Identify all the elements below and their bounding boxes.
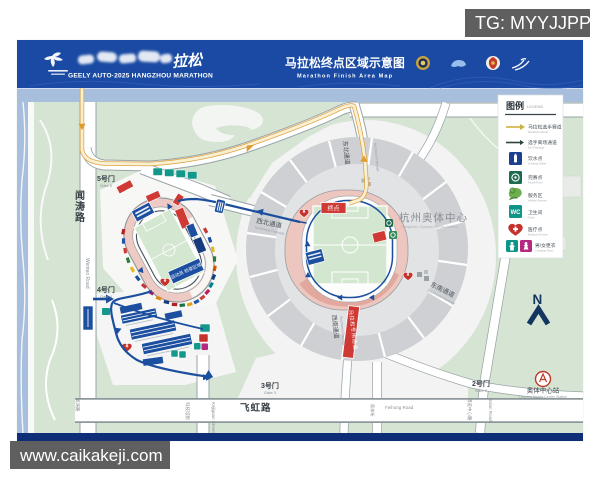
svg-text:Exit Passage: Exit Passage bbox=[528, 146, 545, 150]
svg-text:Drinking Water: Drinking Water bbox=[528, 162, 546, 166]
svg-text:Changing Room: Changing Room bbox=[535, 249, 554, 253]
svg-text:Toilet: Toilet bbox=[528, 216, 535, 220]
svg-text:奥体街: 奥体街 bbox=[369, 404, 376, 417]
svg-text:Gate 5: Gate 5 bbox=[100, 183, 113, 188]
svg-text:科技馆街: 科技馆街 bbox=[184, 402, 191, 420]
svg-text:3号门: 3号门 bbox=[261, 381, 279, 390]
svg-text:飞虹路: 飞虹路 bbox=[240, 402, 272, 414]
svg-text:Bolan Road: Bolan Road bbox=[488, 398, 493, 422]
svg-text:N: N bbox=[533, 292, 543, 307]
svg-text:Finish Point: Finish Point bbox=[528, 181, 543, 185]
svg-text:拉松: 拉松 bbox=[171, 51, 204, 71]
svg-text:Gate 2: Gate 2 bbox=[475, 388, 488, 393]
svg-text:GEELY AUTO·2025 HANGZHOU MARAT: GEELY AUTO·2025 HANGZHOU MARATHON bbox=[68, 73, 213, 80]
svg-text:TG: MYYJJPP: TG: MYYJJPP bbox=[475, 13, 591, 33]
svg-text:4号门: 4号门 bbox=[97, 285, 115, 294]
svg-text:Kejiguan Street: Kejiguan Street bbox=[211, 402, 216, 434]
svg-text:路: 路 bbox=[75, 211, 86, 224]
svg-text:涛: 涛 bbox=[75, 200, 85, 213]
svg-text:Gate 3: Gate 3 bbox=[264, 390, 277, 395]
svg-text:奥体中心站: 奥体中心站 bbox=[527, 386, 560, 395]
svg-text:闻: 闻 bbox=[75, 189, 85, 202]
svg-text:Athlete Service: Athlete Service bbox=[528, 199, 547, 203]
svg-text:5号门: 5号门 bbox=[97, 174, 115, 183]
svg-text:Wentao Road: Wentao Road bbox=[84, 258, 90, 289]
svg-text:Olympic Sports Centre Station: Olympic Sports Centre Station bbox=[519, 395, 567, 399]
svg-text:终点: 终点 bbox=[327, 205, 339, 213]
svg-text:LEGEND: LEGEND bbox=[527, 104, 544, 109]
svg-text:www.caikakeji.com: www.caikakeji.com bbox=[19, 446, 163, 465]
svg-text:Hangzhou Olympic Sports Centre: Hangzhou Olympic Sports Centre bbox=[401, 225, 458, 229]
svg-text:博览中心路: 博览中心路 bbox=[466, 398, 473, 421]
svg-text:Marathon Route: Marathon Route bbox=[528, 130, 549, 134]
svg-text:Feihong Road: Feihong Road bbox=[385, 405, 414, 410]
svg-text:Medical Service: Medical Service bbox=[528, 233, 548, 237]
svg-text:图例: 图例 bbox=[506, 100, 524, 111]
svg-text:WC: WC bbox=[511, 210, 522, 216]
svg-text:男/女更衣: 男/女更衣 bbox=[535, 242, 556, 249]
svg-text:Marathon Finish Area Map: Marathon Finish Area Map bbox=[297, 74, 393, 80]
svg-text:杭州奥体中心: 杭州奥体中心 bbox=[399, 211, 468, 224]
svg-text:Gate 4: Gate 4 bbox=[100, 294, 113, 299]
svg-text:马拉松终点区域示意图: 马拉松终点区域示意图 bbox=[285, 56, 405, 70]
svg-text:2号门: 2号门 bbox=[472, 379, 490, 388]
svg-text:闻涛路: 闻涛路 bbox=[74, 398, 81, 412]
